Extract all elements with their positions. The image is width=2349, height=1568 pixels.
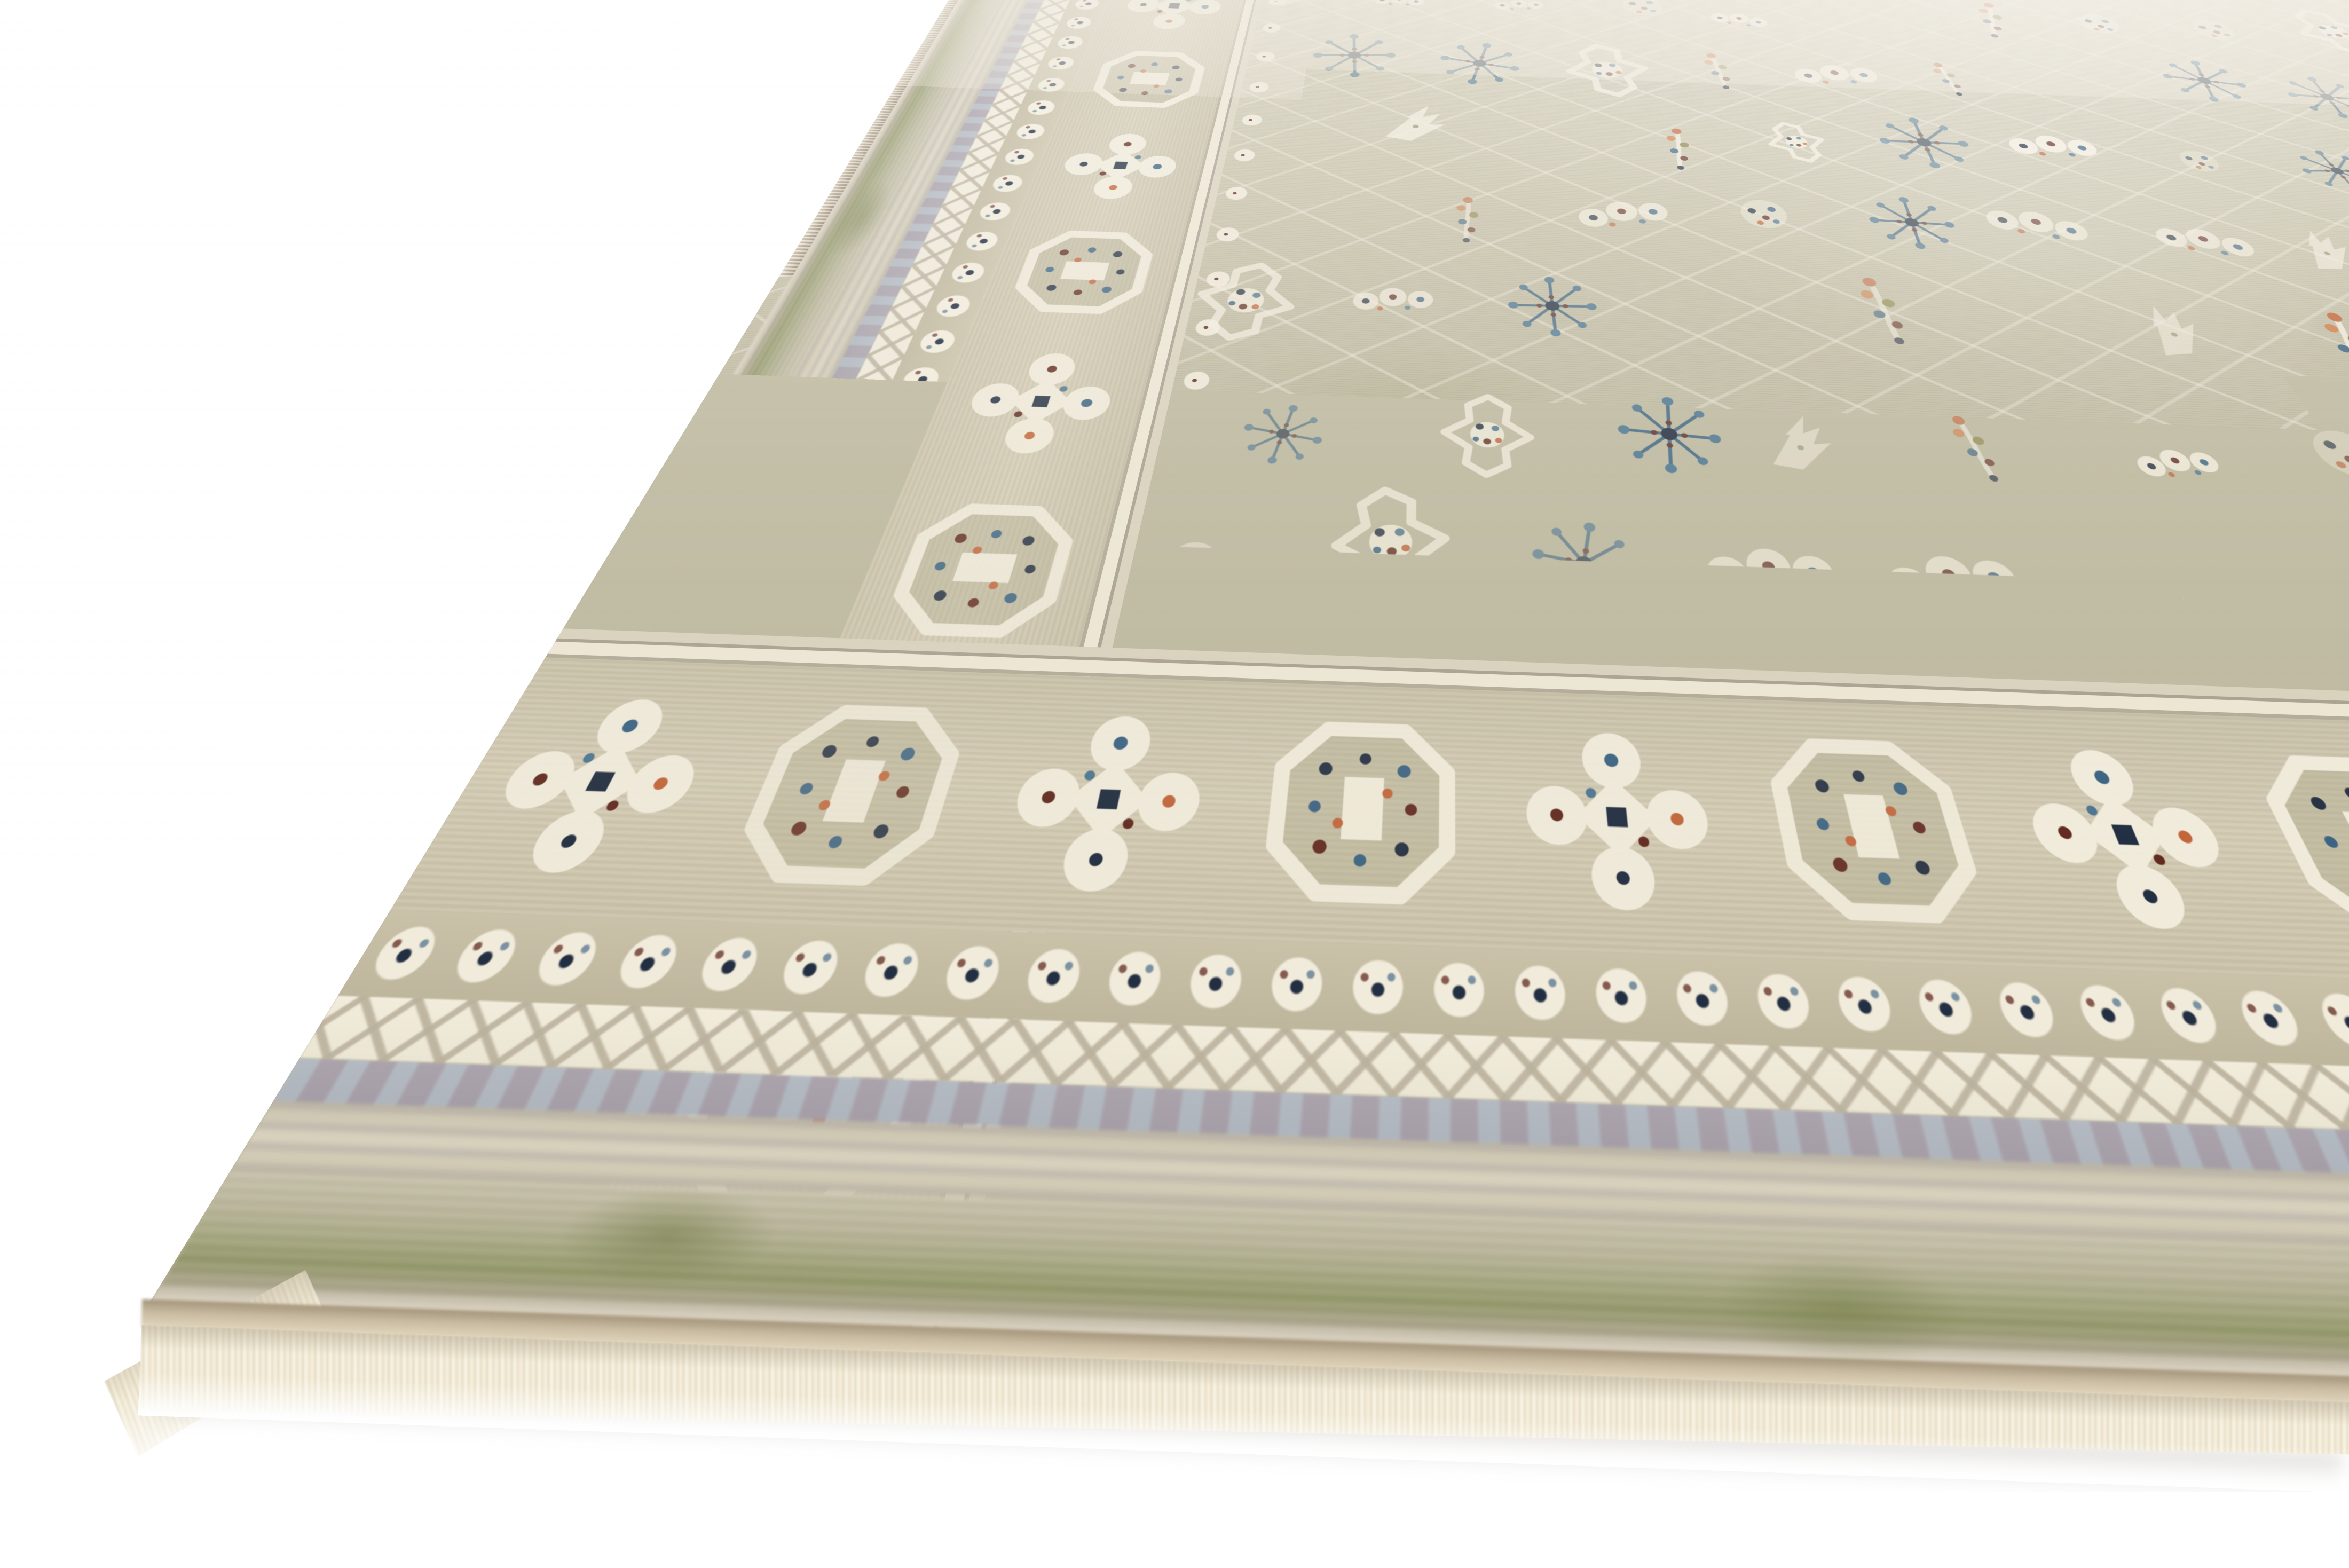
rug — [149, 0, 2349, 1444]
field-motif-snowflake — [1495, 269, 1613, 345]
rug-product-photo — [0, 0, 2349, 1568]
field-motif-flowerchain — [2133, 201, 2281, 287]
field-motif-leaf — [2094, 288, 2255, 372]
field-motif-sprig — [1896, 57, 2001, 100]
border-motif-crossflower — [941, 344, 1132, 464]
field-motif-flowerchain — [1343, 267, 1446, 336]
border-motif-octagon — [1752, 726, 2006, 939]
border-motif-octagon — [1250, 710, 1464, 920]
field-motif-leaf — [1250, 0, 1334, 16]
field-motif-flowerchain — [1846, 512, 2067, 658]
field-motif-flowerchain — [1984, 116, 2127, 180]
field-motif-medallion — [1428, 390, 1545, 482]
field-motif-sprig — [1942, 0, 2045, 48]
rug-field-motifs — [1055, 0, 2349, 725]
border-motif-crossflower — [1991, 735, 2277, 949]
field-motif-flowerchain — [1485, 0, 1555, 21]
field-motif-snowflake — [2260, 69, 2349, 126]
border-motif-octagon — [868, 494, 1091, 650]
field-motif-dotcluster — [1698, 180, 1833, 250]
border-motif-octagon — [998, 224, 1165, 321]
field-motif-dotcluster — [1127, 515, 1255, 611]
field-motif-dotcluster — [2255, 392, 2349, 521]
field-motif-sprig — [1899, 403, 2053, 493]
field-motif-dotcluster — [1587, 0, 1701, 31]
border-motif-crossflower — [979, 701, 1224, 910]
field-motif-sprig — [2263, 294, 2349, 398]
field-motif-leaf — [1745, 396, 1868, 491]
field-motif-snowflake — [2272, 146, 2349, 198]
field-motif-flowerchain — [1772, 49, 1903, 104]
field-motif-leaf — [1361, 90, 1477, 157]
field-motif-medallion — [1749, 119, 1846, 167]
border-motif-crossflower — [1513, 718, 1735, 929]
field-motif-flowerchain — [2104, 424, 2256, 508]
field-motif-flowerchain — [1970, 182, 2109, 272]
border-motif-octagon — [1081, 46, 1214, 113]
field-motif-flowerchain — [1367, 0, 1430, 17]
field-motif-sprig — [1667, 48, 1771, 93]
field-motif-snowflake — [1850, 188, 1977, 259]
field-motif-medallion — [2263, 6, 2349, 58]
field-motif-snowflake — [1420, 32, 1536, 97]
field-motif-snowflake — [1303, 29, 1407, 82]
field-motif-dotcluster — [2041, 2, 2160, 47]
field-motif-snowflake — [1857, 110, 1995, 177]
field-motif-medallion — [1547, 42, 1670, 100]
field-motif-sprig — [1631, 119, 1728, 178]
field-motif-snowflake — [2142, 50, 2271, 113]
field-motif-sprig — [1418, 188, 1514, 250]
border-motif-crossflower — [1112, 0, 1233, 35]
border-motif-crossflower — [1044, 127, 1192, 207]
field-motif-sprig — [1803, 266, 1967, 353]
border-motif-octagon — [708, 692, 984, 901]
field-motif-snowflake — [1510, 502, 1654, 631]
field-motif-dotcluster — [2140, 137, 2261, 186]
field-motif-snowflake — [1219, 390, 1344, 480]
field-motif-flowerchain — [1704, 0, 1774, 41]
field-motif-dotcluster — [2148, 5, 2282, 55]
field-motif-medallion — [1315, 482, 1471, 608]
field-motif-snowflake — [1606, 383, 1738, 489]
field-motif-flowerchain — [1555, 177, 1696, 256]
photo-tilt — [0, 0, 2349, 1568]
field-motif-flowerchain — [1679, 510, 1870, 641]
